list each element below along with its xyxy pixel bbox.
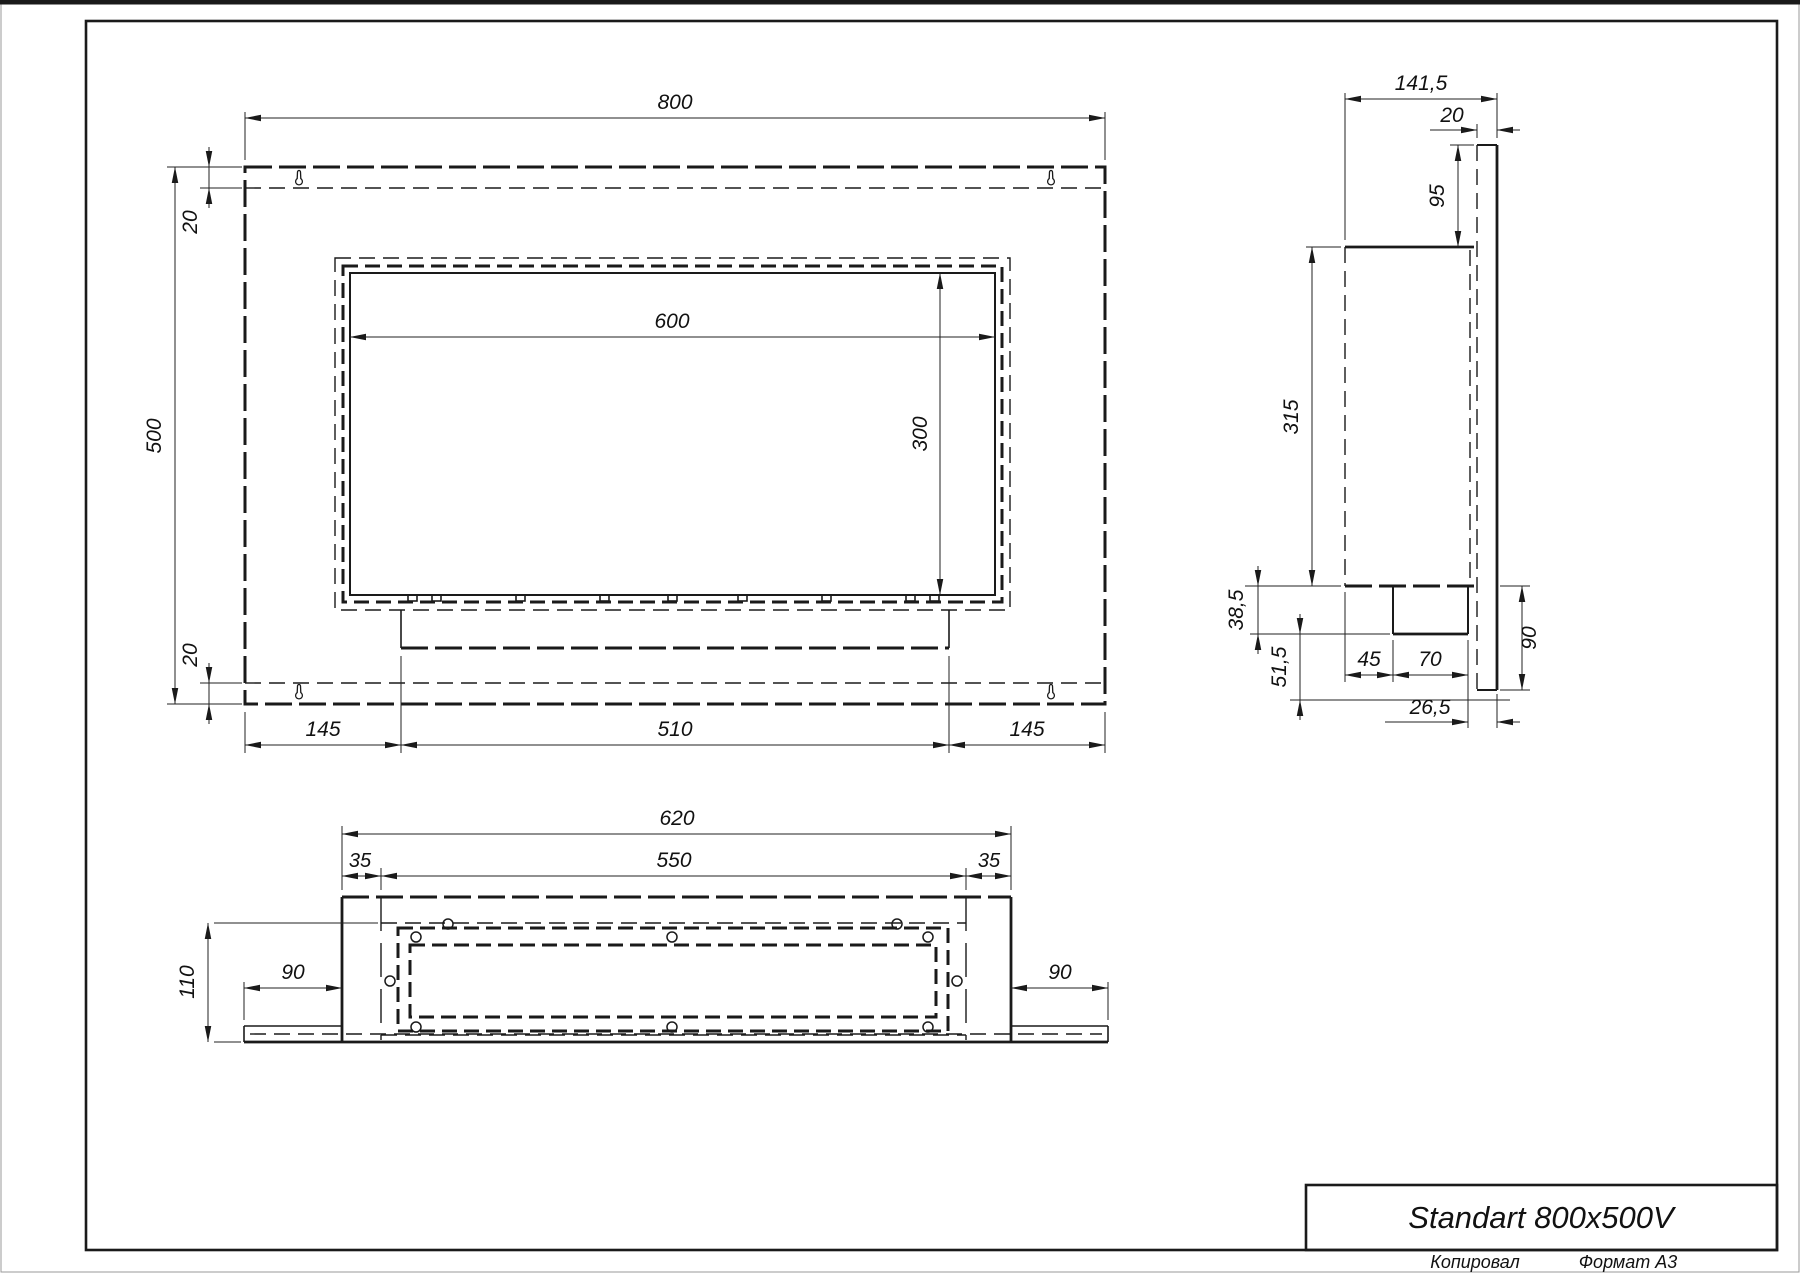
dim-bottom-margin-left: 35: [349, 850, 372, 872]
bottom-wings: [244, 1026, 1108, 1042]
technical-drawing: 800 500 20 20 600 300: [0, 0, 1800, 1273]
keyhole-icon: [296, 171, 303, 185]
dim-side-bottom-height: 90: [1518, 626, 1541, 650]
dim-side-top-offset: 95: [1426, 184, 1449, 208]
front-panel-outline: [245, 167, 1105, 704]
bottom-holes: [385, 919, 962, 1032]
keyhole-icon: [1048, 171, 1055, 185]
keyhole-icon: [296, 685, 303, 699]
dim-bottom-opening-width: 550: [656, 849, 691, 872]
dim-bottom-right: 145: [1009, 718, 1044, 741]
keyhole-icon: [1048, 685, 1055, 699]
dim-side-lower-offset: 51,5: [1268, 646, 1291, 687]
bottom-hidden-outlines: [381, 897, 966, 1040]
dim-bottom-depth: 110: [176, 965, 199, 999]
bottom-dimensions: 620 35 550 35 110 90 90: [176, 807, 1108, 1042]
front-burner-box: [401, 610, 949, 648]
dim-bottom-left: 145: [305, 718, 340, 741]
dim-side-panel-thickness: 20: [1439, 104, 1464, 127]
dim-bottom-width: 620: [659, 807, 694, 830]
front-view: 800 500 20 20 600 300: [143, 91, 1105, 753]
bottom-view: 620 35 550 35 110 90 90: [176, 807, 1108, 1042]
dim-side-box-offset: 45: [1357, 648, 1381, 671]
dim-side-box-width: 70: [1418, 648, 1442, 671]
dim-bottom-wing-right: 90: [1048, 961, 1072, 984]
dim-opening-width: 600: [654, 310, 689, 333]
drawing-title: Standart 800x500V: [1408, 1200, 1677, 1235]
dim-front-flange-bottom: 20: [179, 643, 202, 668]
top-edge-bar: [0, 0, 1800, 5]
copied-label: Копировал: [1430, 1252, 1520, 1272]
dim-front-height: 500: [143, 418, 166, 453]
dim-bottom-margin-right: 35: [978, 850, 1001, 872]
title-block: Standart 800x500V Копировал Формат А3: [1306, 1185, 1777, 1272]
keyhole-slots: [296, 171, 1055, 699]
dim-side-plate-height: 38,5: [1225, 589, 1248, 630]
dim-front-width: 800: [657, 91, 692, 114]
side-burner-box: [1393, 586, 1468, 634]
dim-opening-height: 300: [909, 416, 932, 451]
side-view: 141,5 20 95 315 38,5 51: [1225, 72, 1541, 728]
dim-front-flange-top: 20: [179, 210, 202, 235]
format-label: Формат А3: [1579, 1252, 1678, 1272]
dim-side-body-height: 315: [1280, 399, 1303, 434]
dim-bottom-wing-left: 90: [281, 961, 305, 984]
drawing-sheet: 800 500 20 20 600 300: [0, 0, 1800, 1273]
side-dimensions: 141,5 20 95 315 38,5 51: [1225, 72, 1541, 728]
dim-side-back-gap: 26,5: [1409, 696, 1451, 719]
dim-bottom-center: 510: [657, 718, 692, 741]
dim-side-depth: 141,5: [1395, 72, 1448, 95]
front-dimensions: 800 500 20 20 600 300: [143, 91, 1105, 753]
